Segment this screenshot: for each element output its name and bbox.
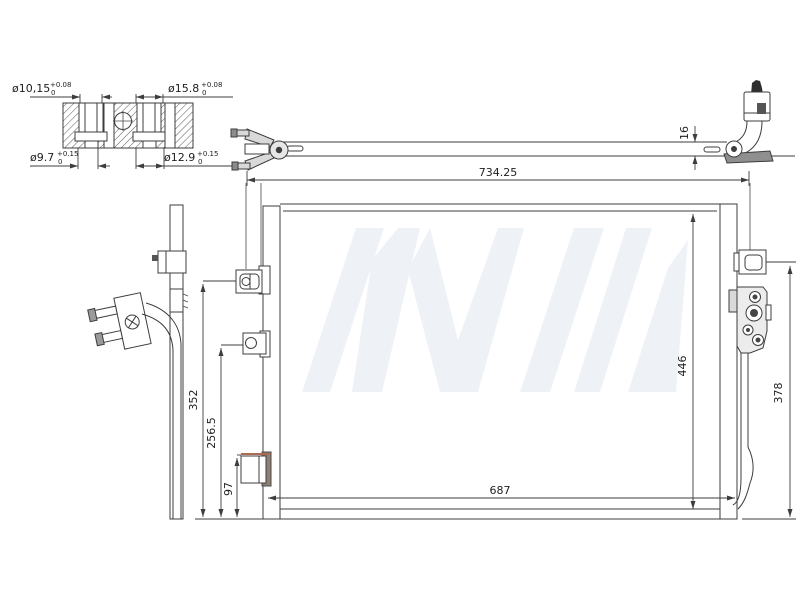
- condenser-drawing: ø10,15 +0.08 0 ø15.8 +0.08 0 ø9.7 +0.15 …: [0, 0, 800, 600]
- dim-label-352: 352: [187, 390, 200, 411]
- top-view-right-connector: [724, 80, 795, 163]
- dim-label-256-5: 256.5: [205, 417, 218, 449]
- side-profile-strip: [152, 205, 188, 519]
- dim-label-16: 16: [678, 126, 691, 140]
- mounting-bracket-mid-left: [243, 331, 270, 357]
- dim-label-734-25: 734.25: [479, 166, 518, 179]
- top-view-bar: [279, 142, 727, 156]
- dim-tol-d15-8-plus: +0.08: [201, 81, 222, 89]
- top-view-left-bracket: [231, 129, 288, 170]
- technical-drawing-canvas: ø10,15 +0.08 0 ø15.8 +0.08 0 ø9.7 +0.15 …: [0, 0, 800, 600]
- dim-label-d15-8: ø15.8: [168, 82, 199, 95]
- mounting-bracket-top-left: [236, 266, 270, 294]
- dim-tol-d10-15-minus: 0: [51, 89, 55, 97]
- dim-tol-d12-9-plus: +0.15: [197, 150, 218, 158]
- mounting-bracket-top-right: [734, 250, 766, 274]
- dim-label-378: 378: [772, 383, 785, 404]
- right-pipe: [733, 353, 753, 509]
- mounting-bracket-bottom-left: [241, 452, 271, 486]
- dim-tol-d9-7-minus: 0: [58, 158, 62, 166]
- watermark: [302, 228, 688, 392]
- dim-label-446: 446: [676, 356, 689, 377]
- dim-tol-d15-8-minus: 0: [202, 89, 206, 97]
- dim-tol-d12-9-minus: 0: [198, 158, 202, 166]
- connector-block-right: [729, 287, 771, 353]
- side-bracket: [86, 293, 151, 355]
- dim-label-d9-7: ø9.7: [30, 151, 54, 164]
- dim-tol-d10-15-plus: +0.08: [50, 81, 71, 89]
- dim-label-d10-15: ø10,15: [12, 82, 50, 95]
- bushing-bore-left: [75, 103, 107, 148]
- bushing-bore-right: [133, 103, 165, 148]
- dim-tol-d9-7-plus: +0.15: [57, 150, 78, 158]
- dim-label-687: 687: [490, 484, 511, 497]
- dim-label-97: 97: [222, 482, 235, 496]
- right-tank: [720, 204, 737, 519]
- dim-label-d12-9: ø12.9: [164, 151, 195, 164]
